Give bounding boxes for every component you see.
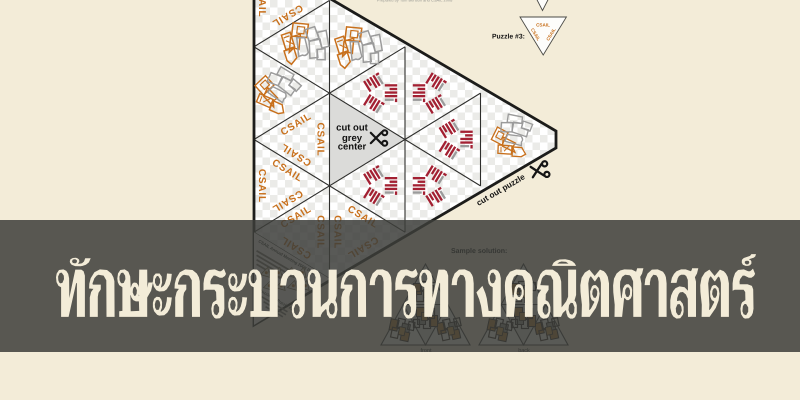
svg-text:Prepared by Tom Benson and CSA: Prepared by Tom Benson and CSAIL 2008 bbox=[377, 0, 453, 2]
svg-text:CSAIL: CSAIL bbox=[256, 169, 267, 203]
svg-text:Puzzle #3:: Puzzle #3: bbox=[492, 34, 525, 41]
svg-text:CSAIL: CSAIL bbox=[256, 0, 267, 17]
svg-text:CSAIL: CSAIL bbox=[315, 123, 326, 157]
svg-text:cut out: cut out bbox=[336, 123, 368, 134]
svg-text:center: center bbox=[338, 142, 367, 153]
svg-text:CSAIL: CSAIL bbox=[536, 23, 550, 28]
